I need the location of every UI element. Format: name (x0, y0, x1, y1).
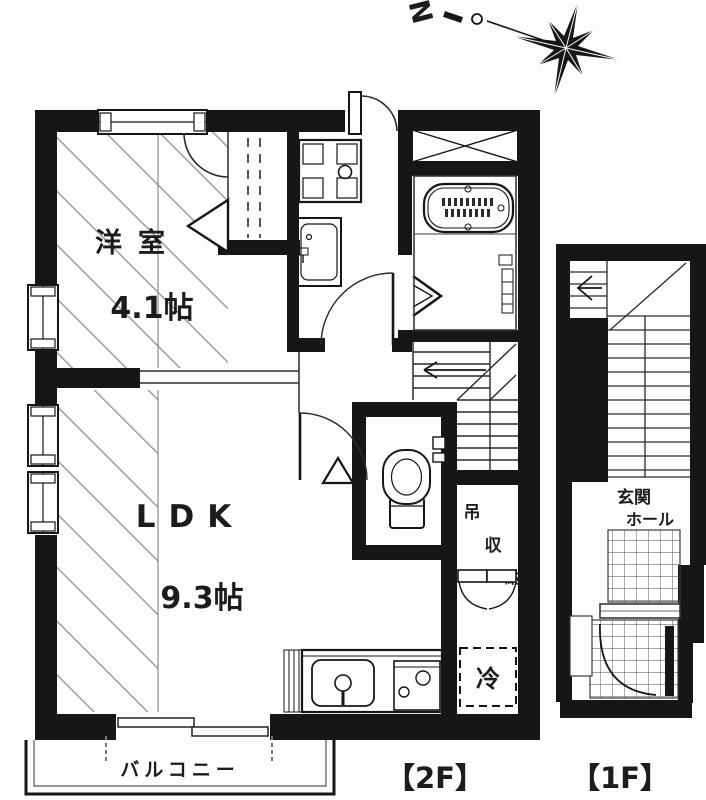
window-icon-left-3 (28, 472, 58, 533)
floor-plan-drawing: N (0, 0, 706, 800)
window-icon-left-2 (28, 405, 58, 466)
entrance-step (600, 604, 680, 618)
kitchen-counter (284, 650, 442, 712)
floor-label-2f: 【2F】 (386, 761, 484, 795)
window-icon-top (98, 110, 207, 134)
svg-text:吊: 吊 (464, 503, 481, 523)
svg-text:ホール: ホール (626, 510, 674, 529)
toilet-door-hardware (433, 437, 445, 462)
western-room-area-label: 4.1帖 (110, 291, 193, 326)
balcony-sliding-door (116, 714, 270, 740)
window-icon-left-1 (28, 285, 58, 350)
toilet-icon (383, 450, 430, 528)
svg-text:冷: 冷 (476, 665, 500, 693)
floor-plan-page: N (0, 0, 706, 800)
ldk-hatching (57, 390, 158, 712)
floor-label-1f: 【1F】 (571, 761, 669, 795)
ldk-area-label: 9.3帖 (160, 581, 243, 616)
svg-text:玄関: 玄関 (617, 487, 651, 508)
closet-x (412, 130, 518, 162)
western-room-label: 洋室 (95, 227, 181, 259)
ldk-label: LDK (136, 499, 245, 535)
compass-needle-ring (472, 14, 482, 24)
svg-text:収: 収 (485, 536, 503, 556)
door-recess (570, 616, 592, 676)
balcony-label: バルコニー (120, 759, 240, 781)
